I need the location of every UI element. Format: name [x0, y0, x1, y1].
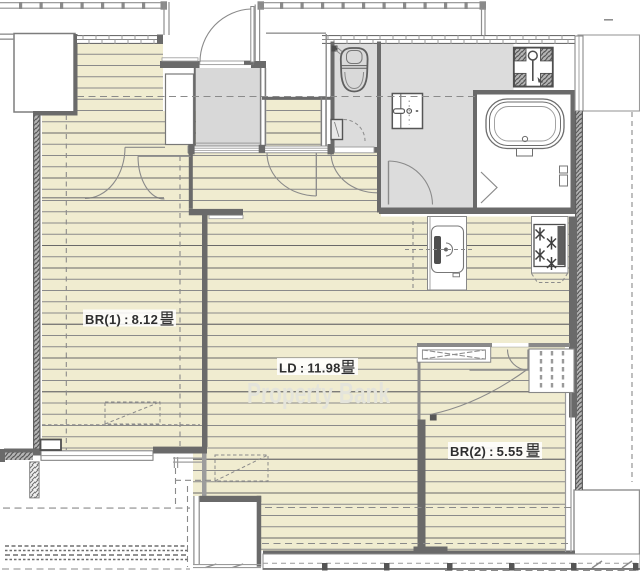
svg-text:Property Bank: Property Bank [247, 378, 391, 410]
svg-text:BR(1) : 8.12: BR(1) : 8.12 [85, 312, 158, 327]
svg-text:LD : 11.98: LD : 11.98 [279, 361, 341, 376]
svg-text:BR(2) : 5.55: BR(2) : 5.55 [450, 444, 523, 459]
